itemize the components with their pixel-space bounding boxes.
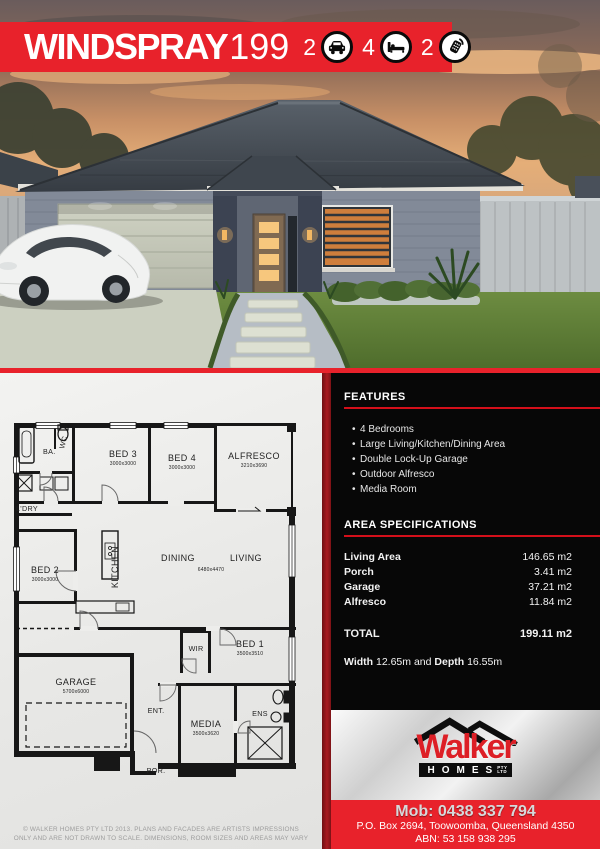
dims-garage: 5700x6000 [63,689,90,695]
slat-window [319,206,395,272]
label-dining: DINING [161,553,195,563]
dims-dining-living: 6480x4470 [198,567,225,573]
abn: ABN: 53 158 938 295 [331,833,600,846]
label-living: LIVING [230,553,262,563]
stat-baths: 2 [421,31,471,63]
dims-media: 3500x3620 [193,731,220,737]
dark-red-strip [322,373,331,849]
feature-item: •4 Bedrooms [344,422,572,437]
car-icon [321,31,353,63]
title-banner: WINDSPRAY 199 2 4 [0,22,452,72]
feature-item: •Media Room [344,482,572,497]
label-ba: BA. [43,447,56,456]
mobile-number: Mob: 0438 337 794 [331,803,600,820]
dims-bed2: 3000x3000 [32,577,59,583]
label-bed4: BED 4 [168,453,196,463]
spec-row: Alfresco 11.84 m2 [344,595,572,610]
label-ens: ENS [252,709,268,718]
total-row: TOTAL 199.11 m2 [344,627,572,642]
plan-number: 199 [229,29,289,65]
bottom-section: BA. WC BED 3 3000x3000 BED 4 3000x3000 A… [0,373,600,849]
plan-walls [14,423,296,777]
label-bed3: BED 3 [109,449,137,459]
area-spec-heading: AREA SPECIFICATIONS [344,519,572,531]
feature-item: •Double Lock-Up Garage [344,452,572,467]
info-column: FEATURES •4 Bedrooms •Large Living/Kitch… [331,373,600,849]
homes-bar: HOMES PTY LTD [419,763,513,777]
spec-row: Living Area 146.65 m2 [344,550,572,565]
label-wc: WC [57,435,69,449]
dimensions-line: Width 12.65m and Depth 16.55m [344,656,572,668]
floor-plan: BA. WC BED 3 3000x3000 BED 4 3000x3000 A… [10,421,310,821]
label-bed2: BED 2 [31,565,59,575]
label-alfresco: ALFRESCO [228,451,280,461]
features-heading: FEATURES [344,391,572,403]
brand-homes: HOMES [424,765,500,776]
car-count: 2 [303,34,316,61]
label-ent: ENT. [148,706,165,715]
area-specifications: AREA SPECIFICATIONS Living Area 146.65 m… [344,519,572,668]
dims-bed1: 3500x3510 [237,651,264,657]
features-rule [344,407,600,409]
stat-cars: 2 [303,31,353,63]
label-wir: WIR [189,644,204,653]
brand-name: Walker [416,734,514,760]
feature-item: •Large Living/Kitchen/Dining Area [344,437,572,452]
flyer-page: WINDSPRAY 199 2 4 [0,0,600,849]
area-spec-rule [344,535,600,537]
contact-bar: Mob: 0438 337 794 P.O. Box 2694, Toowoom… [331,800,600,849]
spec-rows: Living Area 146.65 m2 Porch 3.41 m2 Gara… [344,550,572,610]
label-media: MEDIA [191,719,222,729]
label-garage: GARAGE [56,677,97,687]
entry [213,184,322,304]
spec-row: Garage 37.21 m2 [344,580,572,595]
dims-alfresco: 3210x3690 [241,463,268,469]
dims-bed3: 3000x3000 [110,461,137,467]
postal-address: P.O. Box 2694, Toowoomba, Queensland 435… [331,820,600,833]
disclaimer-line2: ONLY AND ARE NOT DRAWN TO SCALE. DIMENSI… [0,835,322,844]
label-bed1: BED 1 [236,639,264,649]
specs-panel: FEATURES •4 Bedrooms •Large Living/Kitch… [331,373,600,710]
features-list: •4 Bedrooms •Large Living/Kitchen/Dining… [344,422,572,497]
dims-bed4: 3000x3000 [169,465,196,471]
bed-icon [380,31,412,63]
walker-homes-logo: Walker HOMES PTY LTD [331,710,600,800]
disclaimer: © WALKER HOMES PTY LTD 2013. PLANS AND F… [0,826,322,843]
plan-name: WINDSPRAY [24,29,227,65]
shower-icon [439,31,471,63]
disclaimer-line1: © WALKER HOMES PTY LTD 2013. PLANS AND F… [0,826,322,835]
plan-labels: BA. WC BED 3 3000x3000 BED 4 3000x3000 A… [16,435,280,775]
label-ldry: L'DRY [16,504,38,513]
label-por: POR. [147,766,166,775]
label-kitchen: KITCHEN [110,546,120,588]
stat-badges: 2 4 [303,31,470,63]
bed-count: 4 [362,34,375,61]
spec-row: Porch 3.41 m2 [344,565,572,580]
stat-beds: 4 [362,31,412,63]
floorplan-column: BA. WC BED 3 3000x3000 BED 4 3000x3000 A… [0,373,322,849]
bath-count: 2 [421,34,434,61]
brand-ptyltd: PTY LTD [497,766,507,775]
feature-item: •Outdoor Alfresco [344,467,572,482]
